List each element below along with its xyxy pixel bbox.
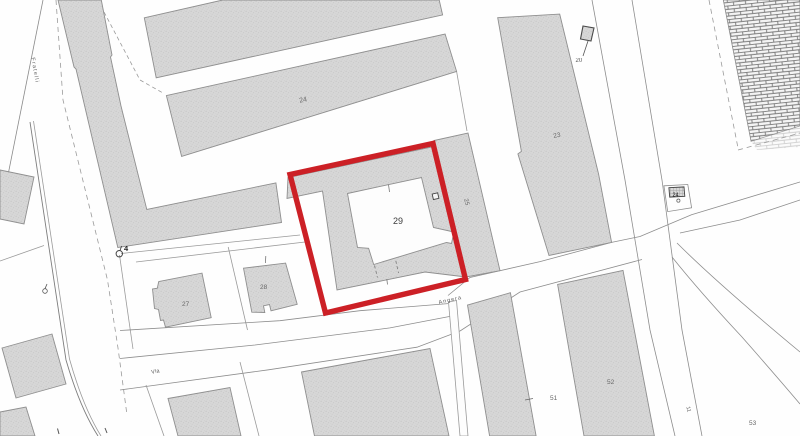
svg-text:24: 24	[673, 193, 679, 199]
svg-text:20: 20	[576, 58, 583, 64]
svg-text:53: 53	[749, 420, 757, 427]
svg-text:52: 52	[607, 379, 615, 386]
svg-text:27: 27	[182, 301, 190, 308]
svg-text:51: 51	[550, 395, 558, 402]
svg-text:29: 29	[393, 216, 403, 226]
svg-text:28: 28	[260, 284, 268, 291]
